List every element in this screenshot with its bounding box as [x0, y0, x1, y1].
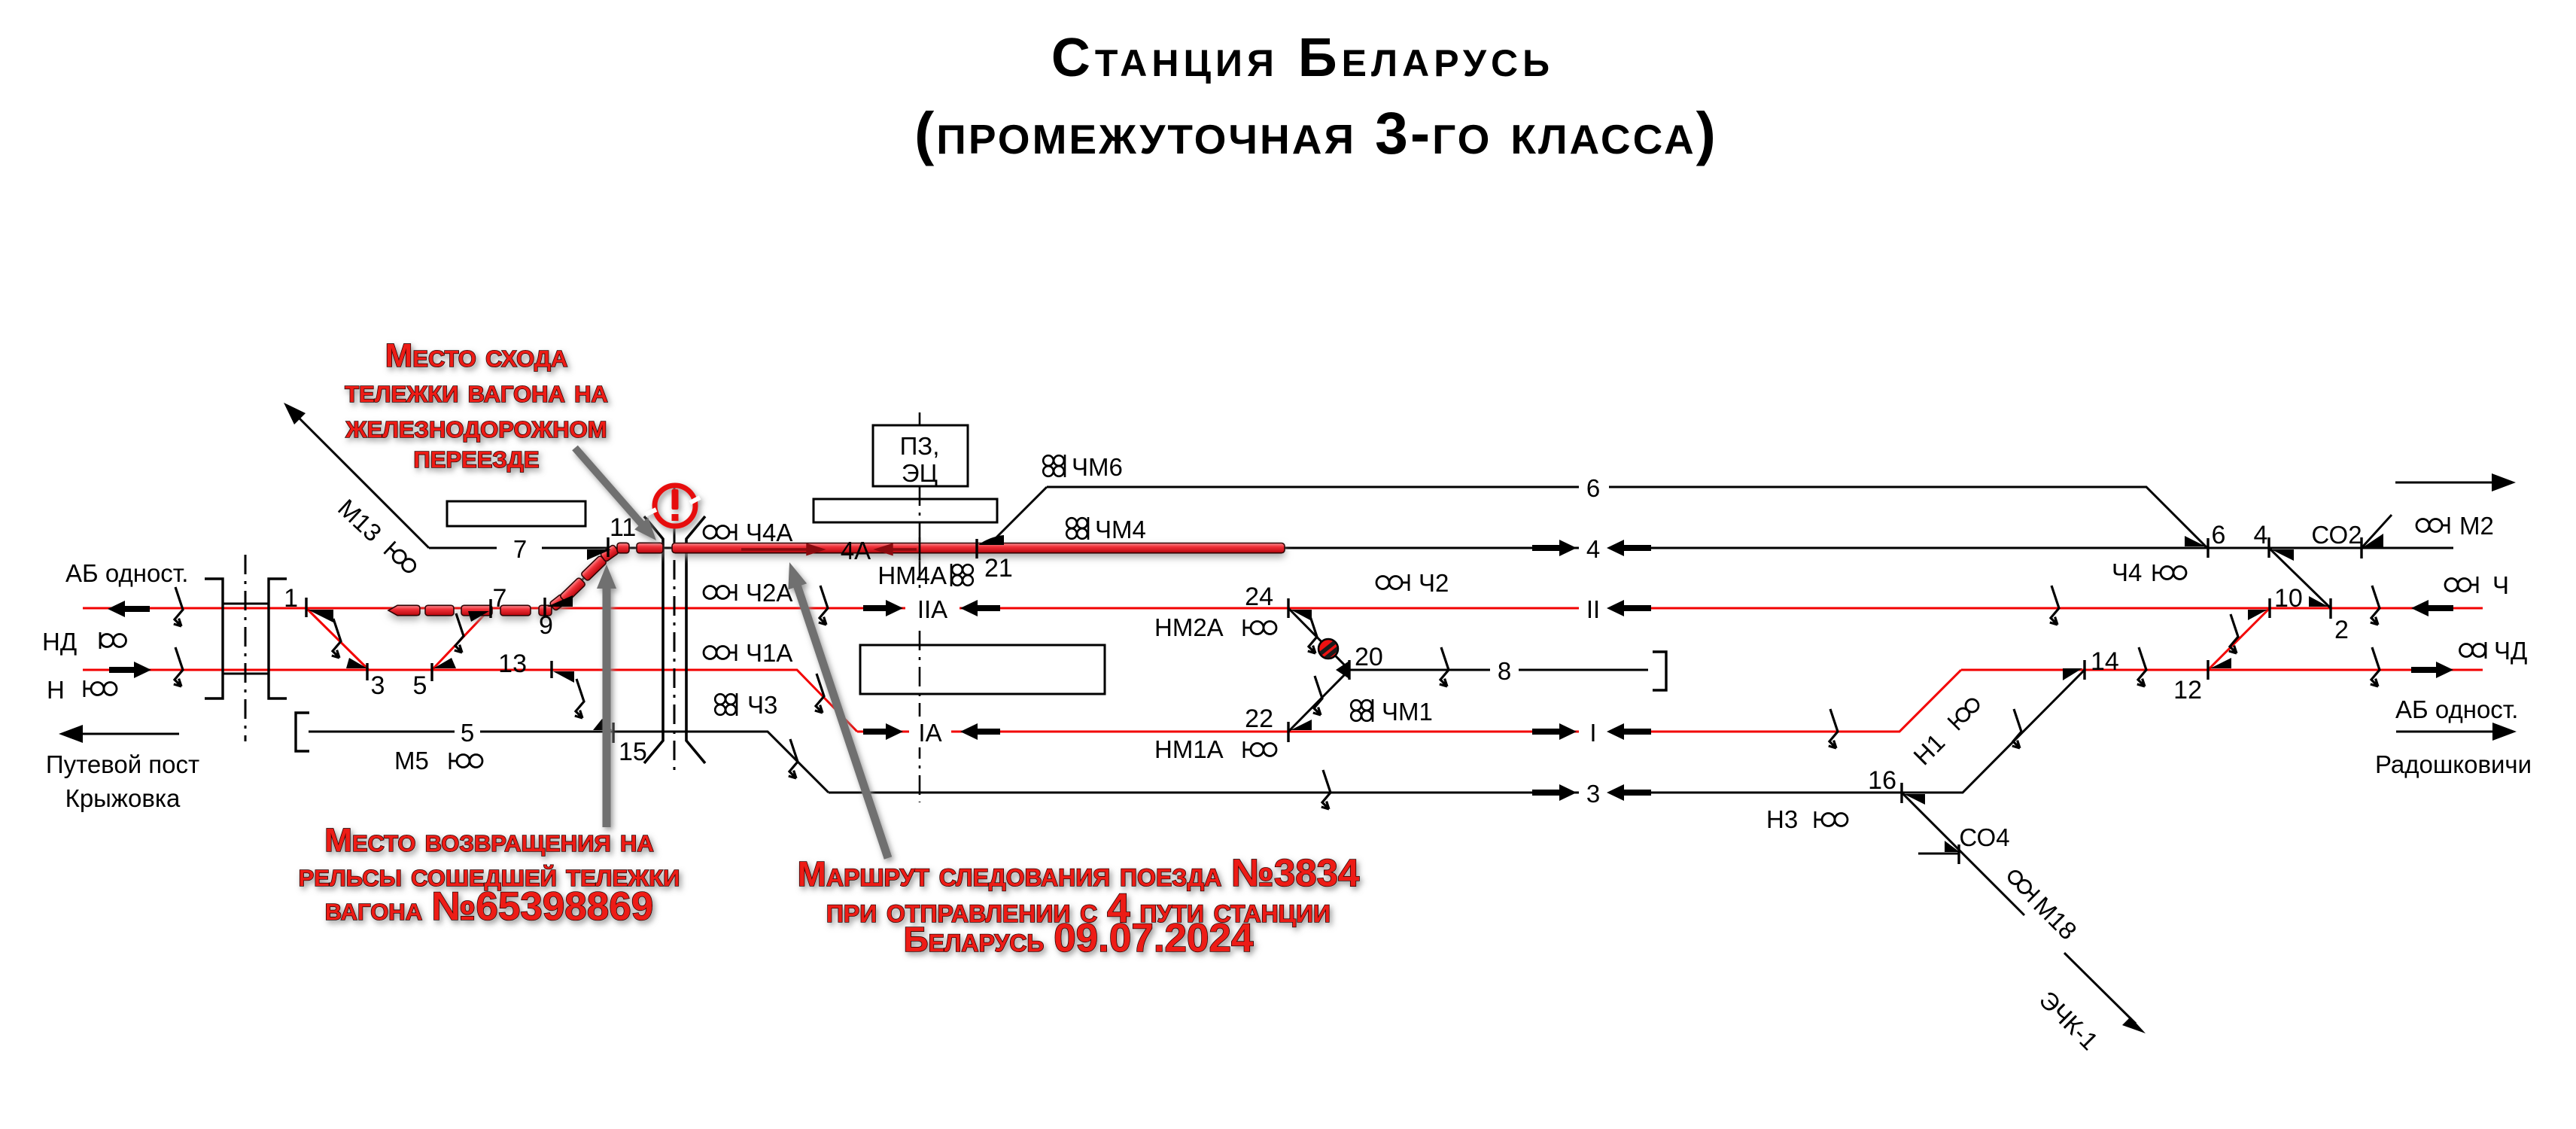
svg-text:Ч3: Ч3 [747, 691, 777, 719]
svg-text:НМ2А: НМ2А [1154, 613, 1224, 641]
svg-text:ЧМ6: ЧМ6 [1072, 453, 1123, 481]
svg-text:ЧМ1: ЧМ1 [1382, 698, 1433, 726]
svg-text:Место схода: Место схода [385, 337, 568, 374]
svg-text:(промежуточная 3-го класса): (промежуточная 3-го класса) [914, 99, 1718, 166]
svg-text:20: 20 [1355, 643, 1383, 671]
svg-text:Ч4: Ч4 [2112, 558, 2142, 586]
svg-text:4: 4 [1586, 535, 1600, 563]
svg-text:4А: 4А [841, 537, 871, 564]
svg-text:НМ4А: НМ4А [877, 561, 947, 589]
svg-text:9: 9 [539, 611, 553, 640]
svg-text:13: 13 [498, 650, 527, 678]
svg-text:Н3: Н3 [1766, 805, 1798, 833]
svg-text:12: 12 [2173, 676, 2202, 704]
svg-text:15: 15 [619, 738, 647, 766]
svg-text:Станция Беларусь: Станция Беларусь [1051, 28, 1554, 88]
svg-text:7: 7 [493, 584, 507, 613]
svg-text:II: II [1586, 595, 1600, 623]
svg-text:21: 21 [984, 554, 1013, 583]
svg-text:СО4: СО4 [1959, 823, 2009, 851]
svg-text:ЭЦ: ЭЦ [902, 459, 938, 487]
svg-text:вагона №65398869: вагона №65398869 [325, 884, 653, 929]
svg-text:1: 1 [284, 584, 298, 613]
svg-text:Беларусь 09.07.2024: Беларусь 09.07.2024 [904, 916, 1254, 960]
svg-text:6: 6 [1586, 474, 1600, 502]
svg-text:14: 14 [2091, 647, 2119, 676]
svg-text:переезде: переезде [413, 438, 539, 475]
svg-text:Ч2: Ч2 [1419, 569, 1449, 597]
svg-text:2: 2 [2334, 616, 2349, 644]
svg-text:22: 22 [1245, 704, 1273, 733]
svg-text:АБ одност.: АБ одност. [65, 559, 188, 587]
svg-text:I: I [1589, 719, 1596, 747]
svg-text:IА: IА [918, 719, 941, 747]
svg-text:Путевой пост: Путевой пост [46, 750, 199, 778]
svg-text:7: 7 [513, 535, 527, 563]
svg-text:ЧД: ЧД [2494, 637, 2527, 665]
svg-text:Ч4А: Ч4А [746, 519, 792, 546]
svg-text:Крыжовка: Крыжовка [65, 784, 181, 812]
svg-text:ПЗ,: ПЗ, [900, 432, 940, 460]
svg-text:3: 3 [1586, 780, 1600, 808]
svg-text:10: 10 [2274, 584, 2303, 613]
svg-text:Место возвращения на: Место возвращения на [324, 822, 654, 859]
svg-text:Ч1А: Ч1А [746, 639, 792, 667]
svg-text:Ч: Ч [2492, 571, 2509, 599]
svg-text:6: 6 [2212, 521, 2226, 549]
svg-text:8: 8 [1498, 657, 1511, 685]
svg-text:IIА: IIА [917, 595, 947, 623]
svg-text:3: 3 [371, 671, 385, 700]
svg-text:НД: НД [42, 628, 77, 656]
svg-text:4: 4 [2254, 521, 2268, 549]
svg-text:Радошковичи: Радошковичи [2375, 750, 2532, 778]
svg-text:СО2: СО2 [2311, 521, 2362, 549]
svg-text:АБ одност.: АБ одност. [2395, 695, 2518, 723]
svg-text:24: 24 [1245, 583, 1273, 611]
svg-text:16: 16 [1868, 766, 1896, 795]
svg-text:Маршрут следования поезда №383: Маршрут следования поезда №3834 [798, 851, 1360, 894]
svg-text:5: 5 [413, 671, 427, 700]
svg-text:Ч2А: Ч2А [746, 579, 792, 607]
svg-text:5: 5 [461, 719, 474, 747]
svg-text:М2: М2 [2459, 512, 2494, 540]
svg-text:НМ1А: НМ1А [1154, 735, 1224, 763]
svg-text:М5: М5 [394, 747, 429, 774]
svg-text:тележки вагона на: тележки вагона на [345, 373, 608, 409]
svg-text:ЧМ4: ЧМ4 [1095, 516, 1146, 543]
svg-text:Н: Н [47, 676, 65, 704]
